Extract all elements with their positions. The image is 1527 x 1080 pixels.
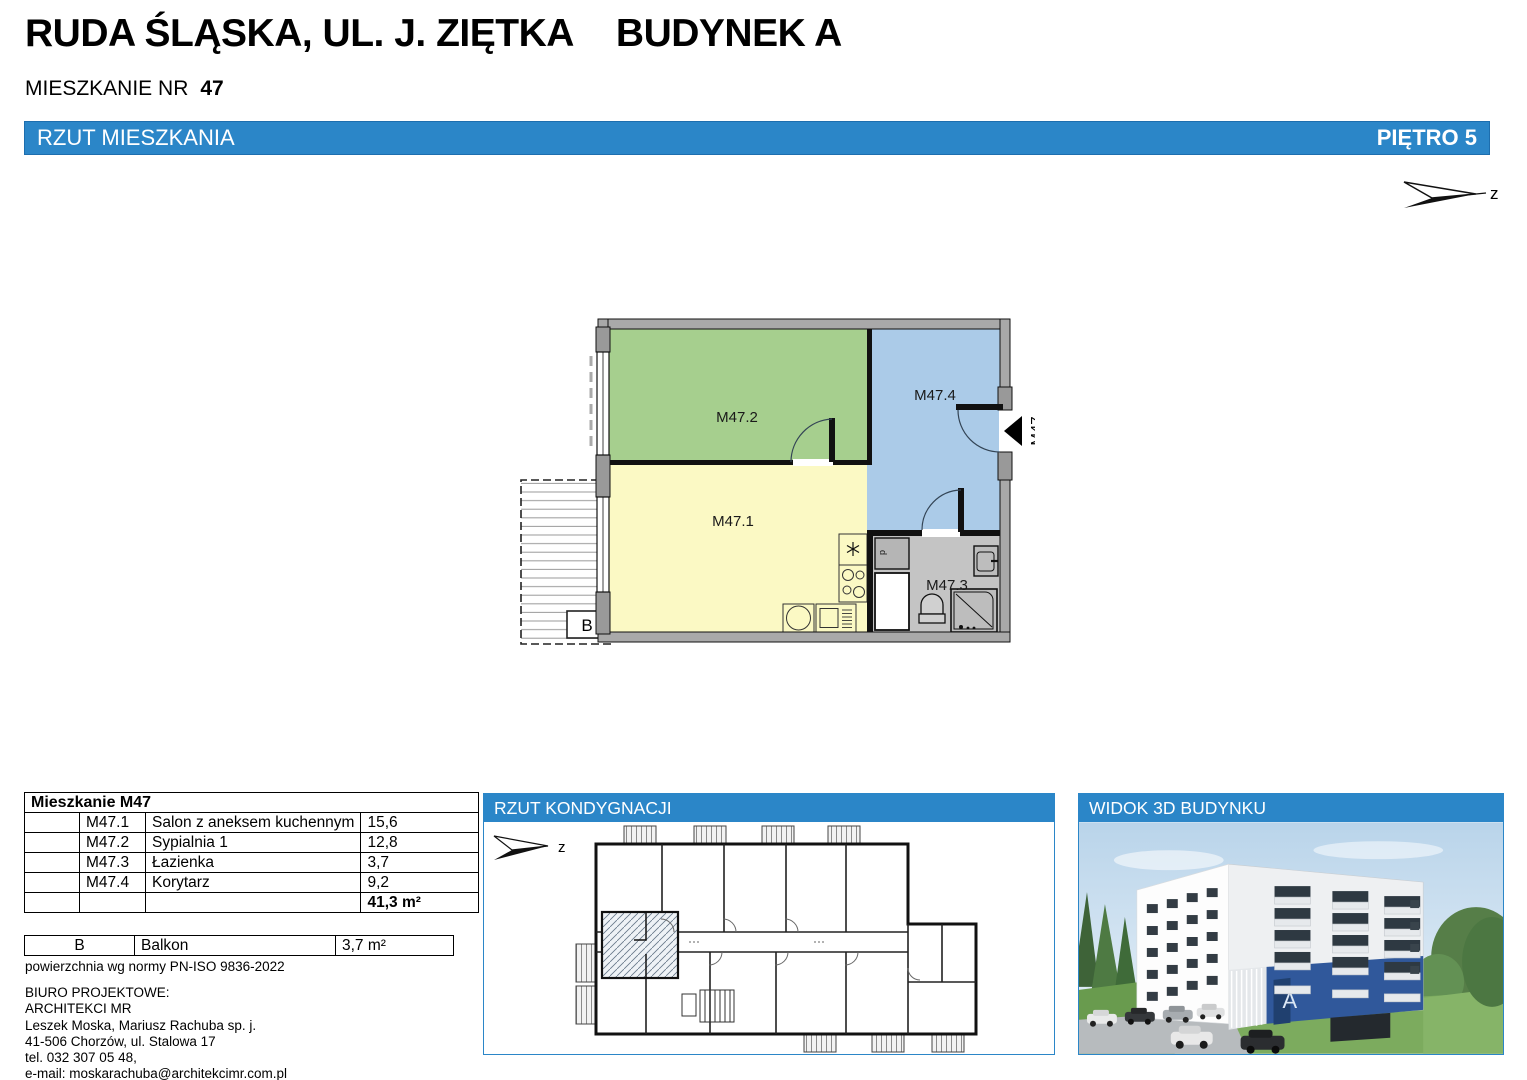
office-name: ARCHITEKCI MR <box>25 1001 287 1017</box>
washer-label: p <box>877 550 887 555</box>
room-code: M47.2 <box>80 833 146 853</box>
balcony-label: B <box>581 616 592 635</box>
table-row: M47.1 Salon z aneksem kuchennym 15,6 <box>25 813 479 833</box>
title-address: RUDA ŚLĄSKA, UL. J. ZIĘTKA <box>25 12 574 55</box>
floor-layout-title: RZUT KONDYGNACJI <box>484 794 1054 822</box>
balcony-name: Balkon <box>135 936 336 956</box>
table-total-row: 41,3 m² <box>25 893 479 913</box>
apartment-number: 47 <box>200 77 223 100</box>
title-building: BUDYNEK A <box>616 12 842 55</box>
room-area: 9,2 <box>361 873 479 893</box>
floor-layout-plan: z <box>484 822 1054 1054</box>
room-name: Sypialnia 1 <box>146 833 361 853</box>
view-3d-title: WIDOK 3D BUDYNKU <box>1079 794 1503 822</box>
page: RUDA ŚLĄSKA, UL. J. ZIĘTKABUDYNEK A MIES… <box>0 0 1527 1080</box>
room-code: M47.4 <box>80 873 146 893</box>
room-corridor <box>867 329 1000 530</box>
room-label-bedroom: M47.2 <box>716 409 758 426</box>
north-arrow: z <box>1398 168 1500 210</box>
room-code: M47.1 <box>80 813 146 833</box>
room-name: Łazienka <box>146 853 361 873</box>
apartment-floor-plan: B <box>515 312 1035 652</box>
table-row: M47.3 Łazienka 3,7 <box>25 853 479 873</box>
north-label: z <box>558 839 566 856</box>
north-label: z <box>1490 184 1499 203</box>
table-row: M47.4 Korytarz 9,2 <box>25 873 479 893</box>
room-area: 12,8 <box>361 833 479 853</box>
balcony-code: B <box>25 936 135 956</box>
entry-label: M47 <box>1028 416 1035 445</box>
balcony-area: 3,7 m² <box>336 936 454 956</box>
table-row: M47.2 Sypialnia 1 12,8 <box>25 833 479 853</box>
highlighted-apartment <box>602 912 678 978</box>
room-label-bathroom: M47.3 <box>926 577 968 594</box>
office-address: 41-506 Chorzów, ul. Stalowa 17 <box>25 1034 287 1050</box>
north-arrow: z <box>494 836 566 860</box>
page-title: RUDA ŚLĄSKA, UL. J. ZIĘTKABUDYNEK A <box>25 12 842 56</box>
apartment-label: MIESZKANIE NR <box>25 77 188 100</box>
office-partners: Leszek Moska, Mariusz Rachuba sp. j. <box>25 1018 287 1034</box>
total-area: 41,3 m² <box>361 893 479 913</box>
titlebar-floor: PIĘTRO 5 <box>1377 125 1477 151</box>
building-3d-render: A <box>1079 822 1503 1054</box>
balcony-table: B Balkon 3,7 m² <box>24 935 454 956</box>
room-area: 3,7 <box>361 853 479 873</box>
norm-note: powierzchnia wg normy PN-ISO 9836-2022 <box>25 959 287 975</box>
office-email: e-mail: moskarachuba@architekcimr.com.pl <box>25 1066 287 1080</box>
room-label-living: M47.1 <box>712 513 754 530</box>
room-name: Salon z aneksem kuchennym <box>146 813 361 833</box>
office-phone: tel. 032 307 05 48, <box>25 1050 287 1066</box>
table-row: B Balkon 3,7 m² <box>25 936 454 956</box>
area-table: Mieszkanie M47 M47.1 Salon z aneksem kuc… <box>24 792 479 913</box>
room-area: 15,6 <box>361 813 479 833</box>
view-3d-panel: WIDOK 3D BUDYNKU <box>1078 793 1504 1055</box>
toilet <box>921 594 943 614</box>
room-bedroom <box>608 329 867 460</box>
area-table-title: Mieszkanie M47 <box>25 793 479 813</box>
section-titlebar: RZUT MIESZKANIA PIĘTRO 5 <box>24 121 1490 155</box>
titlebar-left: RZUT MIESZKANIA <box>37 125 235 151</box>
room-code: M47.3 <box>80 853 146 873</box>
room-name: Korytarz <box>146 873 361 893</box>
footer: powierzchnia wg normy PN-ISO 9836-2022 B… <box>25 959 287 1080</box>
floor-layout-panel: RZUT KONDYGNACJI z <box>483 793 1055 1055</box>
room-label-corridor: M47.4 <box>914 387 956 404</box>
room-living <box>608 460 867 632</box>
apartment-subtitle: MIESZKANIE NR47 <box>25 77 224 101</box>
office-label: BIURO PROJEKTOWE: <box>25 985 287 1001</box>
table-row: Mieszkanie M47 <box>25 793 479 813</box>
